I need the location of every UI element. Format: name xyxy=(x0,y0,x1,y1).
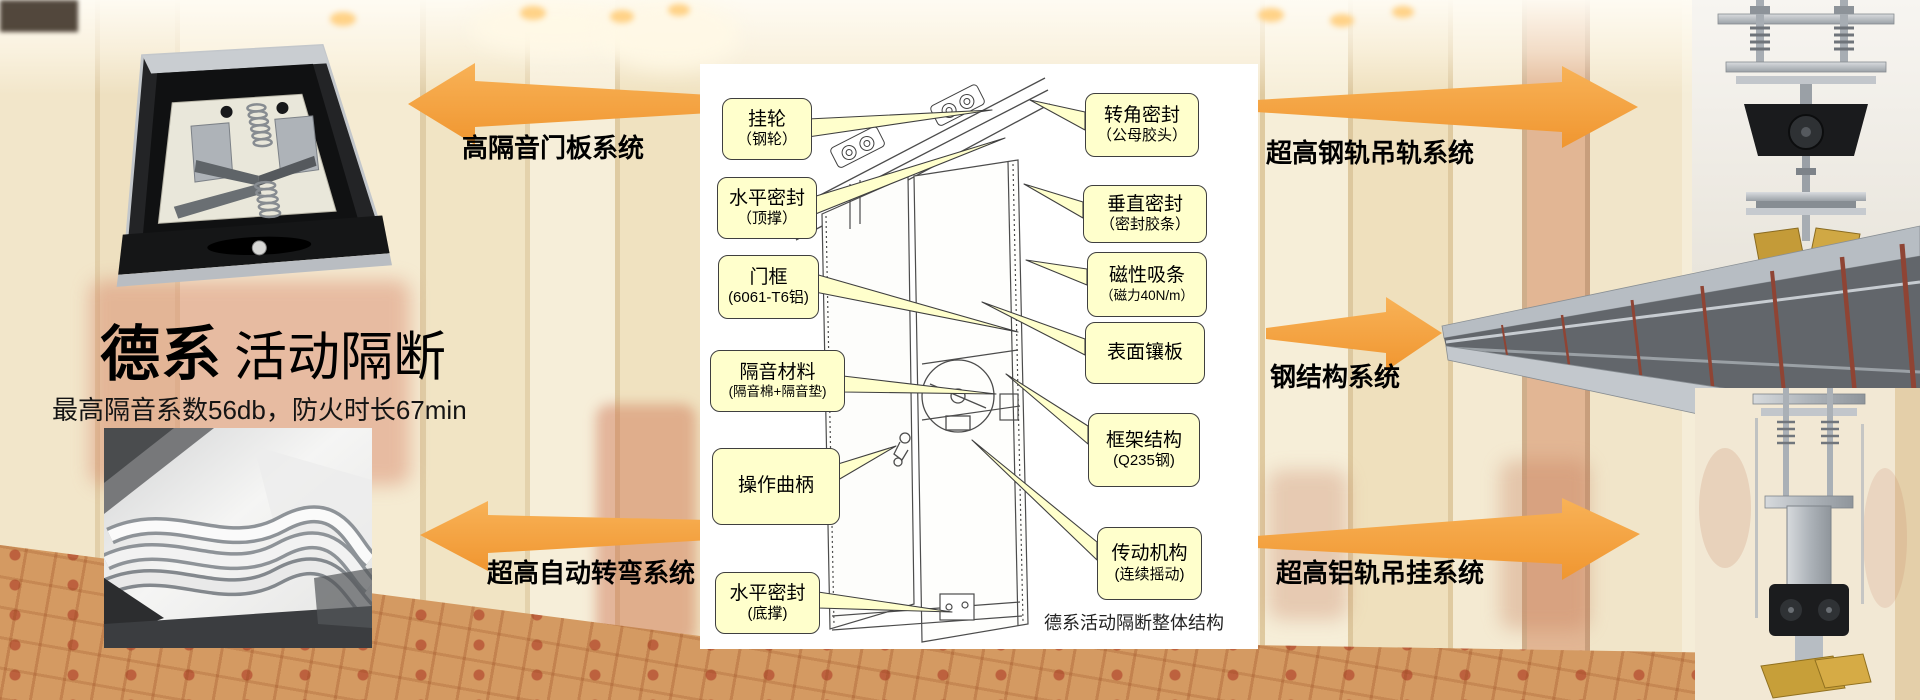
callout-line2: (Q235钢) xyxy=(1113,452,1175,470)
callout-drive-mechanism: 传动机构 (连续摇动) xyxy=(1097,527,1202,600)
callout-line2: (连续摇动) xyxy=(1115,566,1185,584)
callout-hanging-wheel: 挂轮 （钢轮） xyxy=(722,98,812,160)
callout-horizontal-seal-top: 水平密封 （顶撑） xyxy=(717,177,817,239)
diagram-caption: 德系活动隔断整体结构 xyxy=(1044,609,1224,635)
callout-line2: (底撑) xyxy=(748,605,788,623)
callout-surface-panel: 表面镶板 xyxy=(1085,322,1205,384)
label-aluminium-rail-hanging-system: 超高铝轨吊挂系统 xyxy=(1276,553,1484,590)
callout-line2: （钢轮） xyxy=(737,131,797,149)
callout-magnetic-strip: 磁性吸条 （磁力40N/m） xyxy=(1087,252,1207,317)
slide: 挂轮 （钢轮） 水平密封 （顶撑） 门框 (6061-T6铝) 隔音材料 (隔音… xyxy=(0,0,1920,700)
callout-line2: （磁力40N/m） xyxy=(1100,288,1194,304)
callout-line2: （密封胶条） xyxy=(1100,216,1190,234)
callout-frame-structure: 框架结构 (Q235钢) xyxy=(1088,413,1200,487)
callout-line1: 水平密封 xyxy=(729,188,805,210)
callout-line1: 磁性吸条 xyxy=(1109,265,1185,287)
callout-line1: 转角密封 xyxy=(1104,105,1180,127)
product-title-bold: 德系 xyxy=(100,321,222,388)
roller-trolley xyxy=(929,84,985,127)
label-high-soundproof-door-system: 高隔音门板系统 xyxy=(462,128,644,165)
callout-line1: 隔音材料 xyxy=(739,362,815,384)
label-auto-turning-system: 超高自动转弯系统 xyxy=(487,553,695,590)
callout-line1: 框架结构 xyxy=(1106,430,1182,452)
callout-line1: 垂直密封 xyxy=(1107,194,1183,216)
callout-vertical-seal: 垂直密封 （密封胶条） xyxy=(1083,185,1207,243)
callout-line1: 水平密封 xyxy=(729,583,805,605)
callout-corner-seal: 转角密封 （公母胶头） xyxy=(1085,93,1199,157)
callout-operating-crank: 操作曲柄 xyxy=(712,448,840,525)
callout-line1: 操作曲柄 xyxy=(738,475,814,497)
callout-line2: （顶撑） xyxy=(737,210,797,228)
label-steel-rail-hanging-system: 超高钢轨吊轨系统 xyxy=(1266,133,1474,170)
product-subtitle: 最高隔音系数56db，防火时长67min xyxy=(52,390,467,427)
label-steel-structure-system: 钢结构系统 xyxy=(1270,357,1400,394)
callout-acoustic-material: 隔音材料 (隔音棉+隔音垫) xyxy=(710,350,845,412)
structure-diagram-panel: 挂轮 （钢轮） 水平密封 （顶撑） 门框 (6061-T6铝) 隔音材料 (隔音… xyxy=(700,64,1258,649)
callout-horizontal-seal-bottom: 水平密封 (底撑) xyxy=(715,572,820,634)
product-title-regular: 活动隔断 xyxy=(234,328,446,387)
product-title: 德系活动隔断 xyxy=(100,306,446,393)
callout-line2: (6061-T6铝) xyxy=(728,289,809,307)
callout-line2: (隔音棉+隔音垫) xyxy=(729,384,827,400)
callout-line1: 传动机构 xyxy=(1111,543,1187,565)
callout-line1: 挂轮 xyxy=(748,109,786,131)
callout-door-frame: 门框 (6061-T6铝) xyxy=(718,255,819,319)
callout-line2: （公母胶头） xyxy=(1097,127,1187,145)
callout-line1: 门框 xyxy=(749,267,787,289)
callout-line1: 表面镶板 xyxy=(1107,342,1183,364)
